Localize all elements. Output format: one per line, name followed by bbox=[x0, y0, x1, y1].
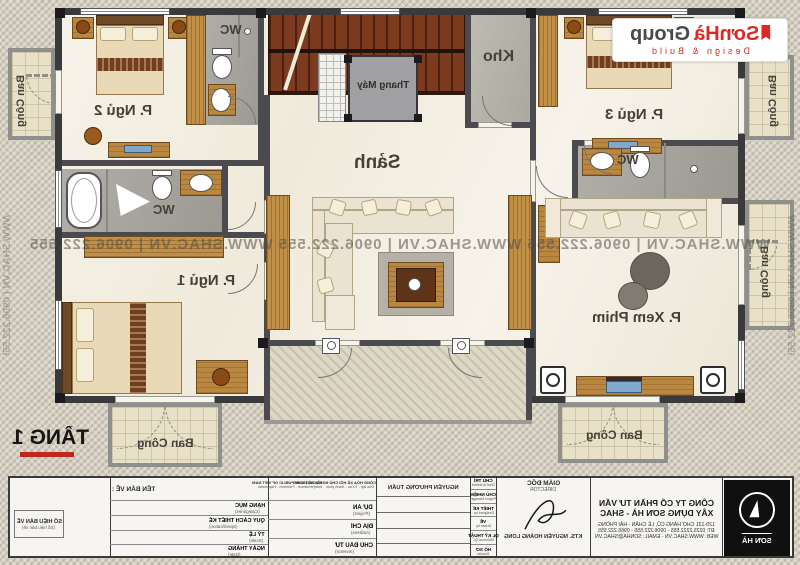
title-block-divider bbox=[590, 476, 591, 558]
sonha-logo-box: SƠN HÀ bbox=[724, 480, 790, 556]
staff-row: VẼDrawn by bbox=[471, 516, 496, 530]
room-label-bedroom1: P. Ngủ 1 bbox=[166, 270, 246, 290]
staff-row: CHỦ TRÌChief Architect bbox=[471, 476, 496, 489]
elevator-pillar bbox=[344, 55, 352, 63]
pillar bbox=[524, 338, 534, 348]
sail-icon bbox=[746, 499, 768, 521]
room-label-balcony-tl: Ban Công bbox=[10, 58, 32, 144]
door-pivot-dot bbox=[327, 341, 336, 350]
room-label-bedroom3: P. Ngủ 3 bbox=[588, 104, 680, 124]
staff-row: HỒ SƠDossier bbox=[471, 544, 496, 558]
toilet bbox=[212, 55, 232, 79]
spec-label-en: (Categories) bbox=[235, 509, 265, 514]
watermark-row: WWW.SHAC.VN | 0906.222.555 WWW.SHAC.VN |… bbox=[0, 233, 800, 255]
pillow bbox=[76, 308, 94, 342]
title-block-divider bbox=[722, 476, 723, 558]
room-label-elevator: Thang Máy bbox=[348, 78, 418, 92]
brand-name-gray: Group bbox=[630, 23, 690, 45]
bed-runner bbox=[96, 58, 164, 71]
window bbox=[598, 8, 688, 15]
wall bbox=[465, 8, 471, 128]
wall bbox=[264, 340, 270, 424]
porch-edge bbox=[264, 420, 532, 424]
elevator-pillar bbox=[344, 114, 352, 122]
balcony-door-opening bbox=[115, 396, 215, 403]
room-label-wc-left: WC bbox=[143, 200, 185, 218]
drawing-number-box: SỐ HIỆU BẢN VẼ (Số hiệu bản vẽ) bbox=[14, 510, 64, 538]
lamp bbox=[212, 368, 230, 386]
wall bbox=[55, 160, 264, 166]
balcony-door-opening bbox=[738, 78, 745, 134]
architect-name: NGUYỄN PHƯƠNG TUẤN bbox=[388, 485, 459, 491]
brand-logo-box: SơnHàGroup Design & Build bbox=[612, 18, 788, 62]
lamp bbox=[567, 20, 581, 34]
title-block-line bbox=[377, 512, 470, 513]
spec-row: QUY CÁCH THIẾT KẾ(Specification) bbox=[110, 515, 268, 530]
window bbox=[80, 8, 170, 15]
pillow bbox=[132, 27, 158, 41]
bed-headboard bbox=[62, 302, 72, 394]
director-label: GIÁM ĐỐC bbox=[527, 480, 560, 487]
wardrobe bbox=[186, 15, 206, 125]
title-block-line bbox=[377, 496, 470, 497]
bed-runner bbox=[130, 302, 146, 394]
sofa-chaise bbox=[325, 295, 355, 330]
room-label-cinema: P. Xem Phim bbox=[580, 306, 692, 328]
sonha-logo-emblem bbox=[739, 492, 775, 528]
company-name-line2: XÂY DỰNG SƠN HÀ - SHAC bbox=[600, 508, 713, 518]
motto-en-line2: Independence - Freedom - Happiness bbox=[270, 485, 322, 489]
door-pivot-dot bbox=[457, 341, 466, 350]
pillar bbox=[735, 393, 745, 403]
pillow bbox=[395, 199, 412, 216]
director-name: KTS. NGUYỄN HOÀNG LONG bbox=[504, 534, 582, 540]
motto-vn-line2: Độc lập - Tự do - Hạnh phúc bbox=[324, 485, 376, 489]
staff-label-en: Designed by bbox=[474, 511, 494, 515]
drawing-name-cell: TÊN BẢN VẼ : bbox=[112, 480, 266, 498]
cinema-sofa-back bbox=[560, 198, 710, 210]
bathtub-basin bbox=[71, 178, 97, 223]
window bbox=[738, 340, 745, 390]
pillar bbox=[258, 338, 268, 348]
watermark-vertical-left: WWW.SHAC.VN | 0906.222.555 bbox=[0, 215, 15, 355]
spec-row: TỶ LỆ(Scale) bbox=[110, 530, 268, 544]
sonha-logo-text: SƠN HÀ bbox=[742, 533, 772, 545]
lamp bbox=[172, 20, 186, 34]
elevator-pillar bbox=[414, 55, 422, 63]
project-row: ĐỊA CHỈ(Address) bbox=[268, 519, 376, 538]
wall bbox=[264, 340, 532, 346]
director-cell: GIÁM ĐỐC DIRECTOR KTS. NGUYỄN HOÀNG LONG bbox=[497, 480, 590, 558]
elevator-pillar bbox=[414, 114, 422, 122]
balcony-door-opening bbox=[565, 396, 660, 403]
staff-label-en: Project Manager bbox=[470, 497, 496, 501]
staff-label-en: Chief Architect bbox=[472, 483, 495, 487]
stool bbox=[84, 127, 102, 145]
spec-label-en: (Date) bbox=[228, 552, 265, 557]
window bbox=[340, 8, 400, 15]
staff-row: QL KỸ THUẬTTechnical QC bbox=[471, 530, 496, 544]
shower-glass bbox=[664, 143, 666, 198]
window bbox=[55, 170, 62, 228]
pillow bbox=[361, 199, 379, 217]
pillar bbox=[526, 8, 536, 18]
sink bbox=[189, 174, 213, 192]
project-row: DỰ ÁN(Project) bbox=[268, 500, 376, 519]
floor-title-underline bbox=[20, 452, 74, 457]
wall bbox=[572, 140, 578, 204]
staff-row: THIẾT KẾDesigned by bbox=[471, 503, 496, 517]
shower-drain bbox=[690, 165, 698, 173]
pillar bbox=[256, 8, 266, 18]
spec-label-en: (Scale) bbox=[249, 538, 265, 543]
laptop bbox=[606, 381, 642, 393]
room-label-storage: Kho bbox=[476, 46, 522, 68]
wall bbox=[526, 340, 532, 424]
room-label-bedroom2: P. Ngủ 2 bbox=[77, 100, 169, 120]
brand-name-red: SơnHà bbox=[694, 23, 759, 45]
pillow bbox=[76, 348, 94, 382]
pillow bbox=[643, 211, 662, 230]
project-row: CHỦ ĐẦU TƯ(Investor) bbox=[268, 538, 376, 558]
staff-row: CHỦ NHIỆMProject Manager bbox=[471, 489, 496, 503]
lamp bbox=[76, 20, 90, 34]
staff-label-en: Dossier bbox=[477, 552, 489, 556]
floor-title: TẦNG 1 bbox=[12, 425, 122, 451]
speaker bbox=[540, 366, 566, 394]
toilet-tank bbox=[212, 48, 232, 55]
spec-row: NGÀY THÁNG(Date) bbox=[110, 544, 268, 558]
toilet bbox=[152, 176, 172, 200]
cinema-sofa-arm bbox=[706, 198, 722, 238]
director-signature bbox=[515, 495, 573, 533]
director-label-en: DIRECTOR bbox=[530, 487, 556, 493]
window bbox=[55, 300, 62, 370]
pillar bbox=[55, 393, 65, 403]
title-block-line bbox=[377, 528, 470, 529]
room-label-balcony-br: Ban Công bbox=[576, 426, 652, 444]
room-label-wc-right: WC bbox=[606, 150, 650, 168]
dresser-decor bbox=[124, 145, 152, 153]
balcony-door-opening bbox=[55, 70, 62, 114]
architect-name-cell: NGUYỄN PHƯƠNG TUẤN bbox=[377, 480, 470, 496]
staff-label-en: Drawn by bbox=[476, 524, 491, 528]
room-label-wc-top: WC bbox=[210, 20, 252, 38]
bed-headboard bbox=[96, 15, 164, 25]
staff-label-en: Technical QC bbox=[473, 538, 494, 542]
project-label-en: (Investor) bbox=[335, 549, 373, 554]
title-block-line bbox=[377, 543, 470, 544]
hall-cabinet bbox=[266, 195, 290, 330]
floorplan-canvas: P. Ngủ 2 WC Thang Máy Kho P. Ngủ 3 WC Sả… bbox=[0, 0, 800, 565]
motto-vn-cell: CỘNG HÒA XÃ HỘI CHỦ NGHĨA VIỆT NAM Độc l… bbox=[324, 480, 376, 498]
brand-logo-tagline: Design & Build bbox=[649, 46, 750, 56]
cinema-sofa-arm bbox=[545, 198, 561, 238]
hall-cabinet bbox=[508, 195, 532, 330]
porch-floor bbox=[264, 346, 532, 422]
sofa-back bbox=[312, 210, 325, 322]
project-label-en: (Address) bbox=[351, 530, 373, 535]
drawing-number-sub: (Số hiệu bản vẽ) bbox=[22, 525, 55, 530]
spec-row: HẠNG MỤC(Categories) bbox=[110, 500, 268, 515]
company-web: WEB: WWW.SHAC.VN - EMAIL: SONHA@SHAC.VN bbox=[595, 534, 718, 540]
stair-landing bbox=[318, 53, 346, 122]
company-name-line1: CÔNG TY CỔ PHẦN TƯ VẤN bbox=[599, 498, 714, 508]
spec-label-en: (Specification) bbox=[209, 524, 265, 529]
company-cell: CÔNG TY CỔ PHẦN TƯ VẤN XÂY DỰNG SƠN HÀ -… bbox=[592, 480, 721, 558]
table-decor bbox=[408, 278, 421, 291]
room-label-balcony-tr: Ban Công bbox=[762, 58, 784, 144]
pillar bbox=[735, 8, 745, 18]
watermark-vertical-right: WWW.SHAC.VN | 0906.222.555 bbox=[785, 215, 800, 355]
project-label-en: (Project) bbox=[353, 511, 373, 516]
brand-flag-icon bbox=[761, 25, 770, 40]
wardrobe bbox=[538, 15, 558, 107]
shower-glass bbox=[106, 169, 108, 232]
pillar bbox=[55, 8, 65, 18]
room-label-hall: Sảnh bbox=[332, 150, 422, 176]
pillow bbox=[100, 27, 126, 41]
staff-label-column: CHỦ TRÌChief Architect CHỦ NHIỆMProject … bbox=[471, 476, 496, 558]
drawing-name-label: TÊN BẢN VẼ : bbox=[112, 486, 155, 493]
speaker bbox=[700, 366, 726, 394]
brand-logo-line1: SơnHàGroup bbox=[630, 24, 770, 44]
room-label-balcony-bl: Ban Công bbox=[126, 434, 204, 452]
